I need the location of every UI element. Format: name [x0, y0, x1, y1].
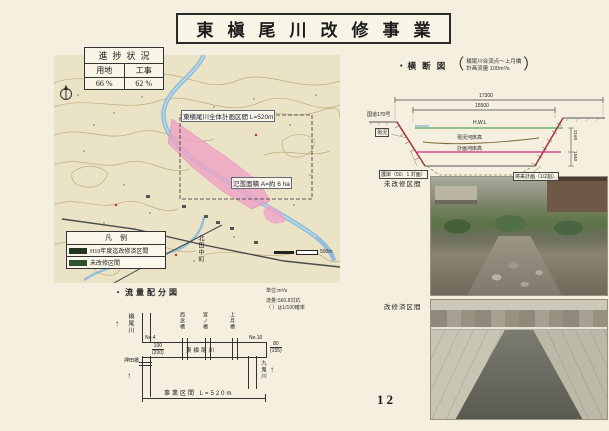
bridge-tick	[182, 338, 188, 360]
progress-col-land: 用地	[85, 64, 125, 78]
progress-value-works: 62 %	[125, 78, 164, 89]
cross-section-diagram: 17300 15500 国道170号 現況 H.W.L 現況河床高 計画河床高 …	[367, 92, 608, 184]
discharge-right-bottom: (155)	[270, 348, 282, 354]
bridge-tick-bottom	[139, 362, 152, 366]
photo1-stream	[463, 236, 576, 295]
photo1-house	[435, 186, 477, 204]
hwl-label: H.W.L	[473, 120, 487, 126]
cross-section-heading: ・横 断 図 （ 槇尾川合流点～上月橋 計画流量 100m³/s ）	[397, 58, 538, 73]
progress-col-works: 工事	[125, 64, 164, 78]
page-title-box: 東槇尾川改修事業	[176, 13, 451, 44]
flow-arrow-icon: ↑	[127, 371, 131, 380]
discharge-right-top: 80	[270, 341, 282, 348]
map-town-label: 北田中町	[196, 235, 205, 263]
legend-label-improved: H10年度迄改修済区間	[90, 246, 148, 255]
photo-unimproved-section	[430, 176, 608, 296]
page-number: 12	[377, 392, 396, 408]
dim-right-lower-label: 1940	[573, 151, 578, 161]
map-flood-area-label: 氾濫面積 A=約 6 ha	[231, 177, 292, 189]
revetment-label: 護岸（50：1 対面）	[379, 170, 428, 179]
cross-section-note-discharge: 計画流量 100m³/s	[466, 66, 521, 73]
legend-item-unimproved: 未改修区間	[67, 256, 165, 268]
future-plan-label: 将来計画（1/2割）	[513, 172, 559, 181]
cross-section-notes: 槇尾川合流点～上月橋 計画流量 100m³/s	[466, 59, 521, 73]
scale-segment-dark	[274, 251, 294, 254]
flow-probability-note: （ ）は1/100確率	[266, 304, 305, 311]
river-right-line	[248, 356, 257, 389]
progress-value-row: 66 % 62 %	[85, 78, 163, 89]
dim-top-label: 17300	[479, 93, 493, 99]
bridge-label-2: 宮ノ橋	[202, 312, 209, 340]
flow-discharge-note: 流量:S60.8対応	[266, 297, 300, 304]
station-no10-label: No.10	[249, 335, 262, 341]
cross-section-title: ・横 断 図	[397, 60, 447, 72]
bridge-tick	[205, 338, 211, 360]
page-title: 東槇尾川改修事業	[197, 16, 445, 41]
flow-arrow-icon: ↑	[115, 319, 119, 328]
bridge-label-3: 上月橋	[229, 312, 236, 340]
span-tick-right	[265, 394, 266, 402]
channel-name-label: 東槇尾川	[186, 346, 216, 354]
bridge-label-bottom: 押田橋	[124, 357, 139, 364]
span-dimension-line	[142, 398, 266, 399]
legend-item-improved: H10年度迄改修済区間	[67, 245, 165, 256]
progress-header-row: 用地 工事	[85, 64, 163, 78]
river-right-label: 九鬼川	[259, 360, 267, 380]
legend-swatch-unimproved	[69, 260, 87, 266]
scale-segment-light	[296, 250, 318, 255]
span-length-label: 事業区間 L=520m	[164, 388, 234, 397]
photo-improved-section	[430, 299, 608, 420]
map-legend: 凡例 H10年度迄改修済区間 未改修区間	[66, 231, 166, 269]
dim-right-upper-label: 2160	[573, 130, 578, 140]
discharge-left-values: 100 (200)	[152, 343, 164, 356]
scanned-report-page: 東槇尾川改修事業	[0, 0, 609, 431]
cross-section-note-reach: 槇尾川合流点～上月橋	[466, 59, 521, 66]
dim-inner-label: 15500	[475, 103, 489, 109]
bridge-label-1: 西念橋	[179, 312, 186, 340]
span-tick-left	[142, 394, 143, 402]
road-label: 国道170号	[367, 111, 390, 118]
flow-diagram-title: ・流量配分図	[114, 287, 180, 298]
discharge-left-top: 100	[152, 343, 164, 350]
station-no4-label: No.4	[145, 335, 156, 341]
scale-label: 500m	[320, 249, 333, 255]
flow-unit-note: 単位:m³/s	[266, 287, 287, 294]
photo2-buildings	[431, 310, 607, 329]
current-bed-label: 現況河床高	[457, 134, 482, 141]
legend-label-unimproved: 未改修区間	[90, 258, 120, 267]
map-scale-bar: 500m	[274, 249, 333, 255]
progress-value-land: 66 %	[85, 78, 125, 89]
photo2-guardrail	[431, 327, 607, 329]
current-profile-label: 現況	[375, 128, 389, 137]
photo-label-unimproved: 未改修区間	[384, 178, 422, 188]
progress-status-table: 進捗状況 用地 工事 66 % 62 %	[84, 47, 164, 90]
photo1-building	[547, 177, 607, 212]
flow-distribution-diagram: ・流量配分図 単位:m³/s 流量:S60.8対応 （ ）は1/100確率 槇尾…	[112, 285, 404, 417]
plan-bed-label: 計画河床高	[457, 145, 482, 152]
bridge-tick	[232, 338, 238, 360]
discharge-right-values: 80 (155)	[270, 341, 282, 354]
legend-title: 凡例	[67, 232, 165, 245]
bracket-close: ）	[523, 58, 538, 73]
flow-arrow-icon: ↑	[270, 365, 274, 374]
legend-swatch-improved	[69, 248, 87, 254]
bracket-open: （	[449, 58, 464, 73]
river-left-label: 槇尾川	[126, 313, 135, 334]
map-plan-extent-label: 東槇尾川全体計画区間 L=520m	[181, 110, 275, 122]
progress-title: 進捗状況	[85, 48, 163, 64]
discharge-left-bottom: (200)	[152, 350, 164, 356]
